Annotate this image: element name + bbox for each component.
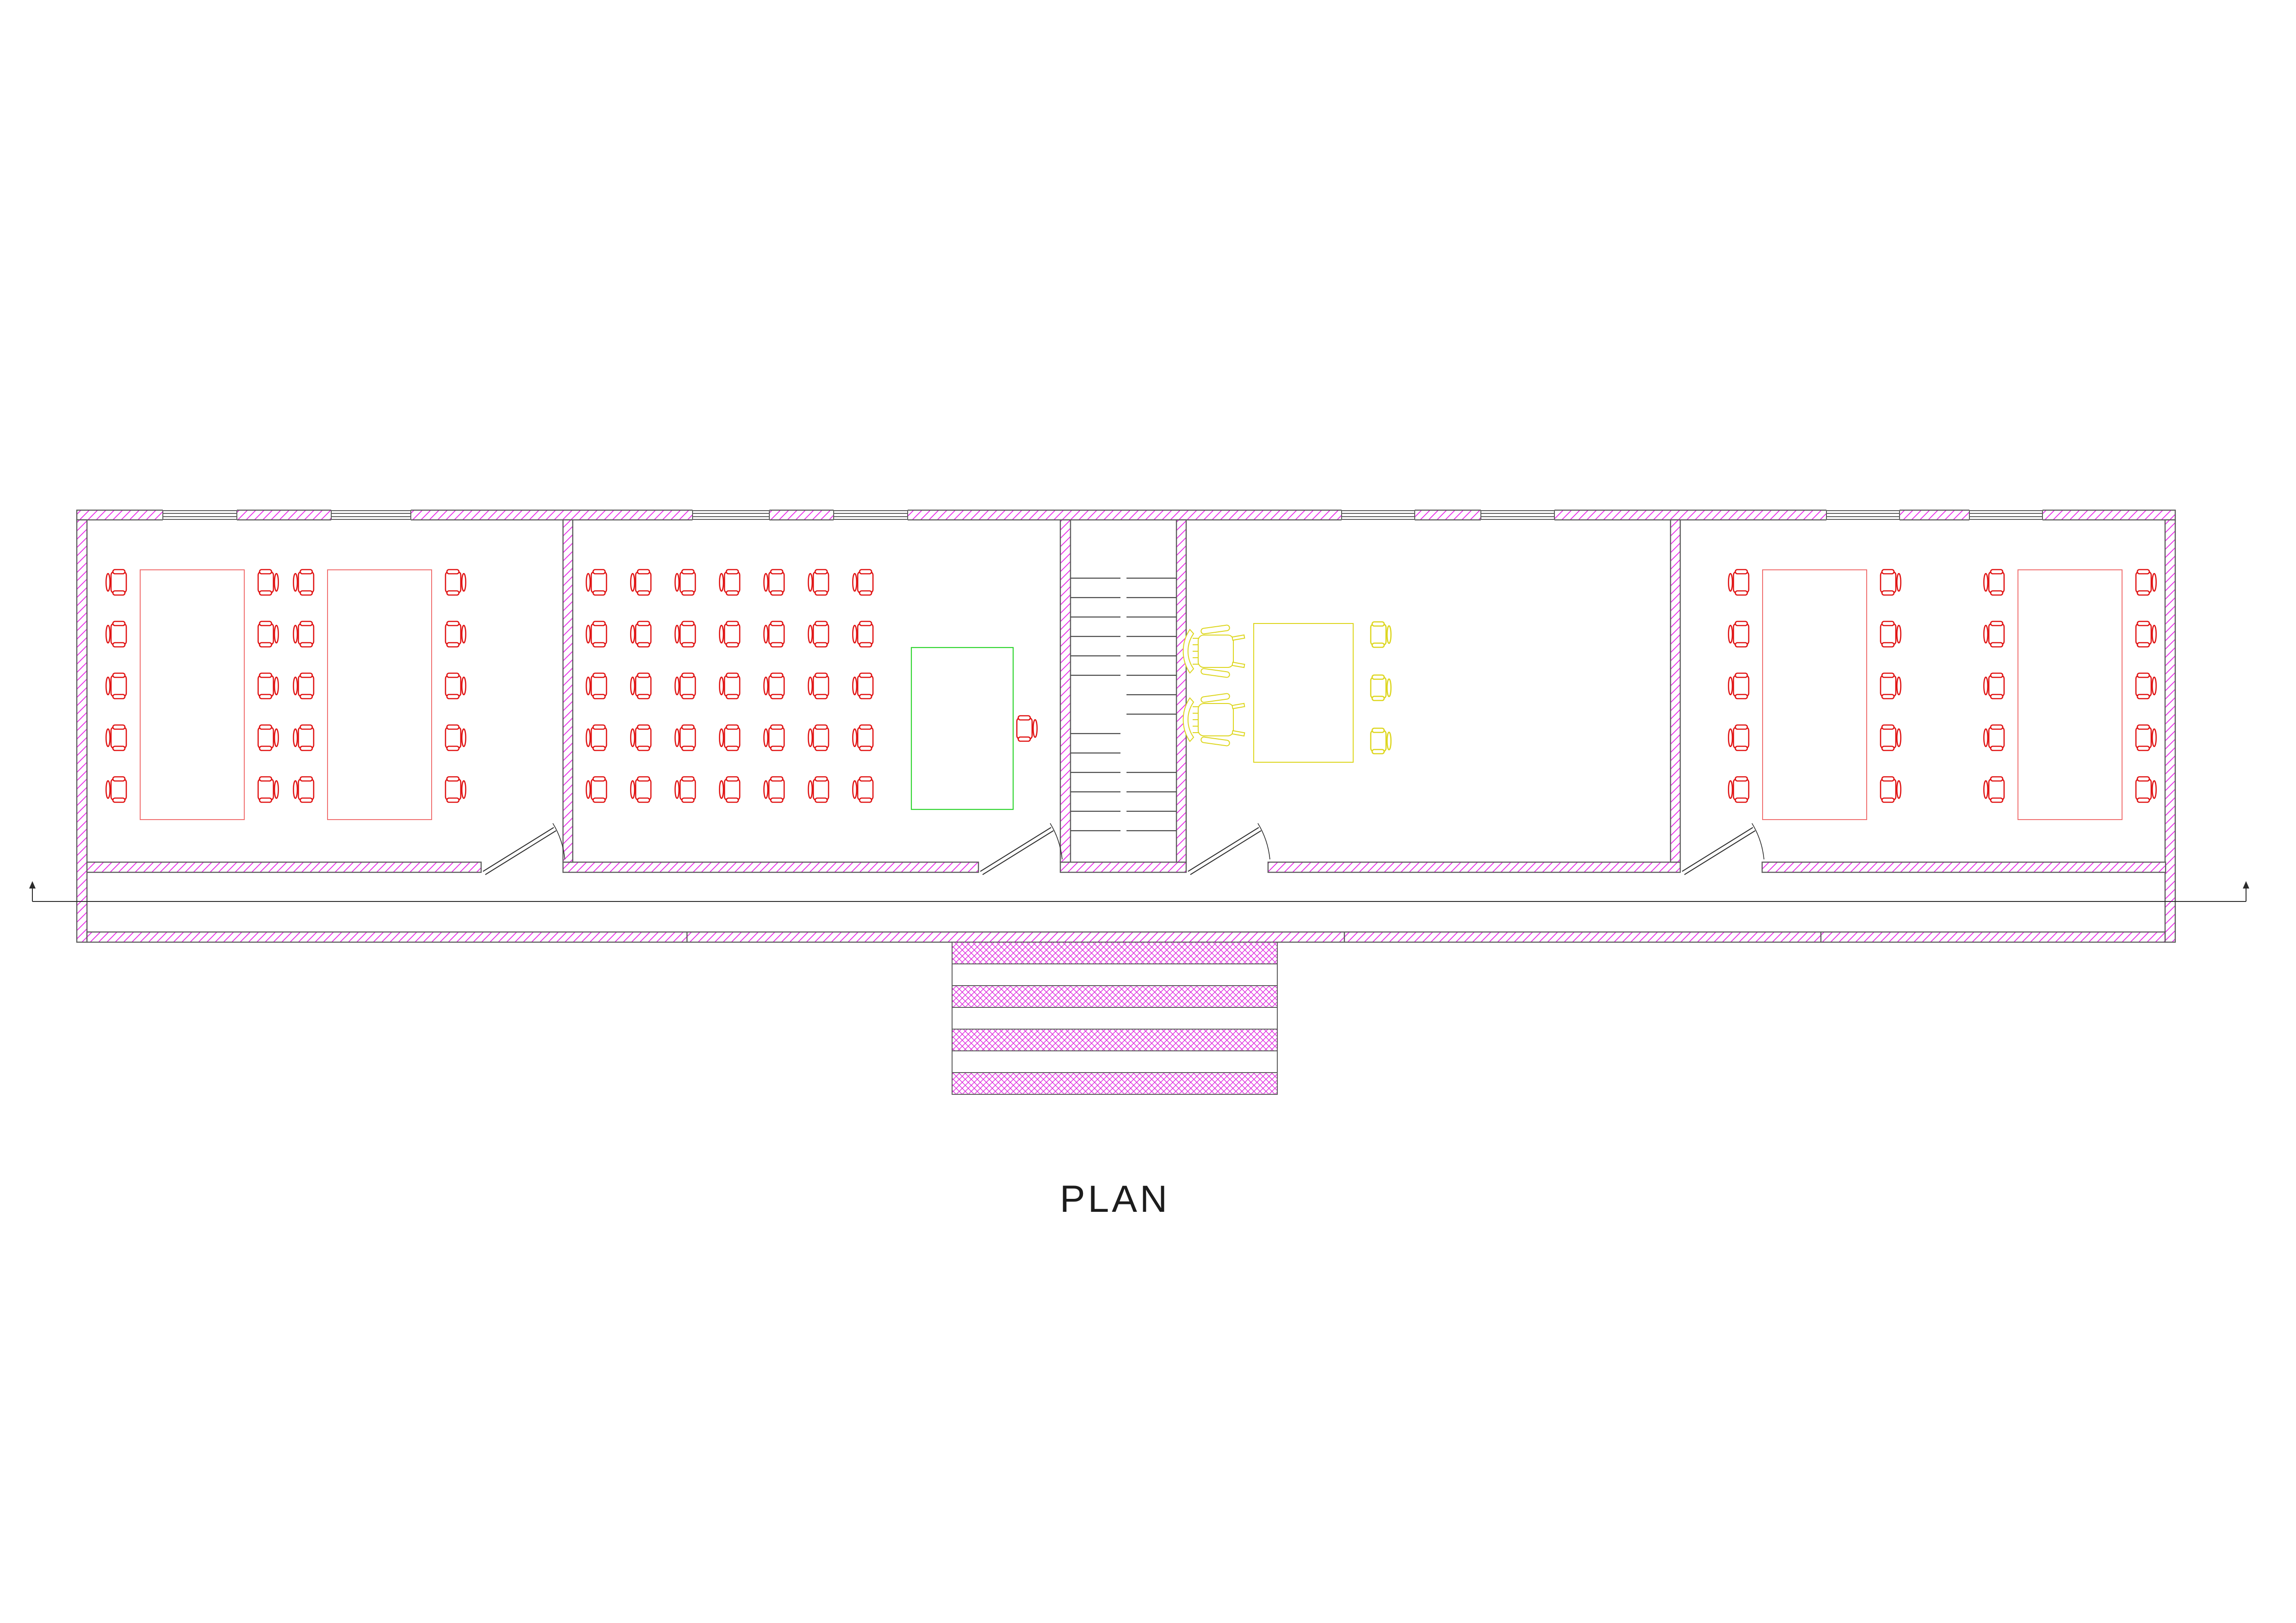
- door-leaf: [483, 827, 554, 871]
- office-side-chair: [1371, 728, 1391, 754]
- door-meeting-west: [483, 823, 565, 875]
- chair: [106, 622, 126, 647]
- chair: [258, 570, 278, 595]
- ground-datum-layer: [29, 881, 2249, 901]
- door-leaf: [980, 827, 1051, 871]
- chair: [258, 673, 278, 699]
- window-7: [1826, 509, 1900, 521]
- door-classroom: [980, 823, 1062, 875]
- door-leaf: [1188, 827, 1259, 871]
- window-8: [1969, 509, 2042, 521]
- chair: [2136, 725, 2156, 751]
- classroom-chair: [853, 673, 873, 699]
- door-leaf: [1190, 831, 1261, 875]
- door-leaf: [1684, 831, 1755, 875]
- window-3: [693, 509, 769, 521]
- wall-south-segment-4: [1268, 862, 1680, 872]
- cad-viewport: PLAN: [0, 0, 2296, 1623]
- chair: [1728, 622, 1749, 647]
- meeting-table-group-1: [106, 570, 278, 820]
- classroom-chair: [764, 725, 784, 751]
- entrance-step-hatched: [952, 986, 1277, 1007]
- chair: [446, 725, 466, 751]
- classroom-chair: [764, 673, 784, 699]
- walls-layer: [77, 510, 2175, 942]
- classroom-chair: [675, 570, 695, 595]
- door-swing-arc: [1752, 823, 1764, 859]
- wall-right: [2165, 520, 2175, 942]
- datum-arrow: [29, 881, 36, 889]
- chair: [1984, 570, 2004, 595]
- classroom-chair: [853, 725, 873, 751]
- chair: [293, 777, 314, 802]
- classroom-chair: [631, 622, 651, 647]
- office-side-chair: [1371, 622, 1391, 648]
- classroom-chair: [808, 777, 829, 802]
- classroom-chair: [719, 725, 740, 751]
- partition-meeting-west-classroom: [563, 520, 573, 862]
- chair: [1728, 777, 1749, 802]
- chair: [1728, 673, 1749, 699]
- classroom-chair: [675, 777, 695, 802]
- classroom-chair: [808, 622, 829, 647]
- chair: [1728, 570, 1749, 595]
- classroom-chair: [719, 673, 740, 699]
- wall-south-segment-5: [1762, 862, 2166, 872]
- door-swing-arc: [1258, 823, 1270, 859]
- classroom-chair: [586, 673, 606, 699]
- wall-bottom-corridor: [87, 932, 2165, 942]
- window-4: [834, 509, 908, 521]
- teacher-chair: [1017, 716, 1037, 741]
- teacher-desk: [911, 648, 1013, 809]
- chair: [1881, 777, 1901, 802]
- meeting-table-group-3: [1728, 570, 1900, 820]
- classroom-chair: [631, 725, 651, 751]
- chair: [106, 777, 126, 802]
- entrance-step-hatched: [952, 1029, 1277, 1051]
- door-office: [1188, 823, 1270, 875]
- chair: [106, 673, 126, 699]
- classroom-chair: [631, 570, 651, 595]
- chair: [446, 777, 466, 802]
- meeting-table-group-2: [293, 570, 465, 820]
- wall-south-segment-3: [1060, 862, 1186, 872]
- chair: [106, 570, 126, 595]
- partition-classroom-stair: [1060, 520, 1071, 862]
- window-1: [163, 509, 237, 521]
- classroom-group: [586, 570, 1037, 810]
- chair: [446, 622, 466, 647]
- classroom-chair: [853, 570, 873, 595]
- entrance-step: [952, 1051, 1277, 1073]
- door-meeting-east: [1682, 823, 1764, 875]
- office-group: [1183, 622, 1391, 763]
- classroom-chair: [675, 622, 695, 647]
- executive-chair: [1183, 625, 1245, 678]
- chair: [1984, 777, 2004, 802]
- window-6: [1481, 509, 1554, 521]
- chair: [446, 673, 466, 699]
- classroom-chair: [719, 622, 740, 647]
- classroom-chair: [764, 777, 784, 802]
- meeting-table: [328, 570, 432, 820]
- chair: [1881, 725, 1901, 751]
- classroom-chair: [808, 673, 829, 699]
- classroom-chair: [675, 725, 695, 751]
- chair: [1984, 673, 2004, 699]
- datum-arrow: [2243, 881, 2249, 889]
- classroom-chair: [719, 777, 740, 802]
- classroom-chair: [808, 570, 829, 595]
- meeting-table: [140, 570, 244, 820]
- chair: [293, 673, 314, 699]
- entrance-step: [952, 964, 1277, 986]
- classroom-chair: [631, 777, 651, 802]
- door-leaf: [983, 831, 1053, 875]
- chair: [258, 622, 278, 647]
- meeting-table-group-4: [1984, 570, 2156, 820]
- chair: [258, 777, 278, 802]
- chair: [293, 622, 314, 647]
- chair: [293, 570, 314, 595]
- chair: [106, 725, 126, 751]
- classroom-chair: [631, 673, 651, 699]
- office-side-chair: [1371, 675, 1391, 701]
- entrance-steps-layer: [952, 942, 1277, 1094]
- chair: [1881, 622, 1901, 647]
- entrance-step: [952, 1007, 1277, 1029]
- wall-south-segment-1: [87, 862, 481, 872]
- chair: [2136, 777, 2156, 802]
- classroom-chair: [675, 673, 695, 699]
- classroom-chair: [586, 725, 606, 751]
- meeting-table: [1763, 570, 1867, 820]
- chair: [1984, 622, 2004, 647]
- classroom-chair: [764, 622, 784, 647]
- entrance-step-hatched: [952, 1073, 1277, 1094]
- classroom-chair: [586, 570, 606, 595]
- chair: [1728, 725, 1749, 751]
- window-2: [331, 509, 411, 521]
- classroom-chair: [586, 777, 606, 802]
- plan-title-label: PLAN: [1060, 1178, 1170, 1220]
- door-leaf: [485, 831, 556, 875]
- door-leaf: [1682, 827, 1753, 871]
- classroom-chair: [808, 725, 829, 751]
- staircase-layer: [1071, 578, 1176, 831]
- floor-plan-canvas: PLAN: [0, 0, 2296, 1623]
- partition-office-meeting-east: [1671, 520, 1680, 862]
- entrance-step-hatched: [952, 942, 1277, 964]
- chair: [2136, 622, 2156, 647]
- classroom-chair: [764, 570, 784, 595]
- wall-south-segment-2: [563, 862, 978, 872]
- chair: [1984, 725, 2004, 751]
- classroom-chair: [853, 777, 873, 802]
- classroom-chair: [853, 622, 873, 647]
- chair: [293, 725, 314, 751]
- meeting-table: [2018, 570, 2122, 820]
- chair: [446, 570, 466, 595]
- partition-stair-office: [1176, 520, 1186, 862]
- chair: [258, 725, 278, 751]
- window-5: [1342, 509, 1415, 521]
- wall-left: [77, 520, 87, 942]
- chair: [2136, 673, 2156, 699]
- classroom-chair: [586, 622, 606, 647]
- office-table: [1254, 623, 1353, 762]
- chair: [2136, 570, 2156, 595]
- classroom-chair: [719, 570, 740, 595]
- executive-chair: [1183, 693, 1245, 747]
- chair: [1881, 570, 1901, 595]
- chair: [1881, 673, 1901, 699]
